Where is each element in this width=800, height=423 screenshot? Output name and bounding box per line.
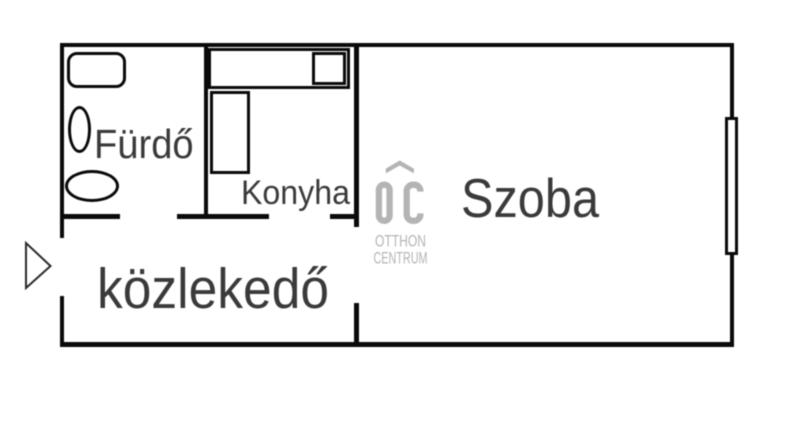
svg-text:OTTHON: OTTHON: [375, 232, 426, 250]
svg-text:CENTRUM: CENTRUM: [374, 249, 428, 267]
